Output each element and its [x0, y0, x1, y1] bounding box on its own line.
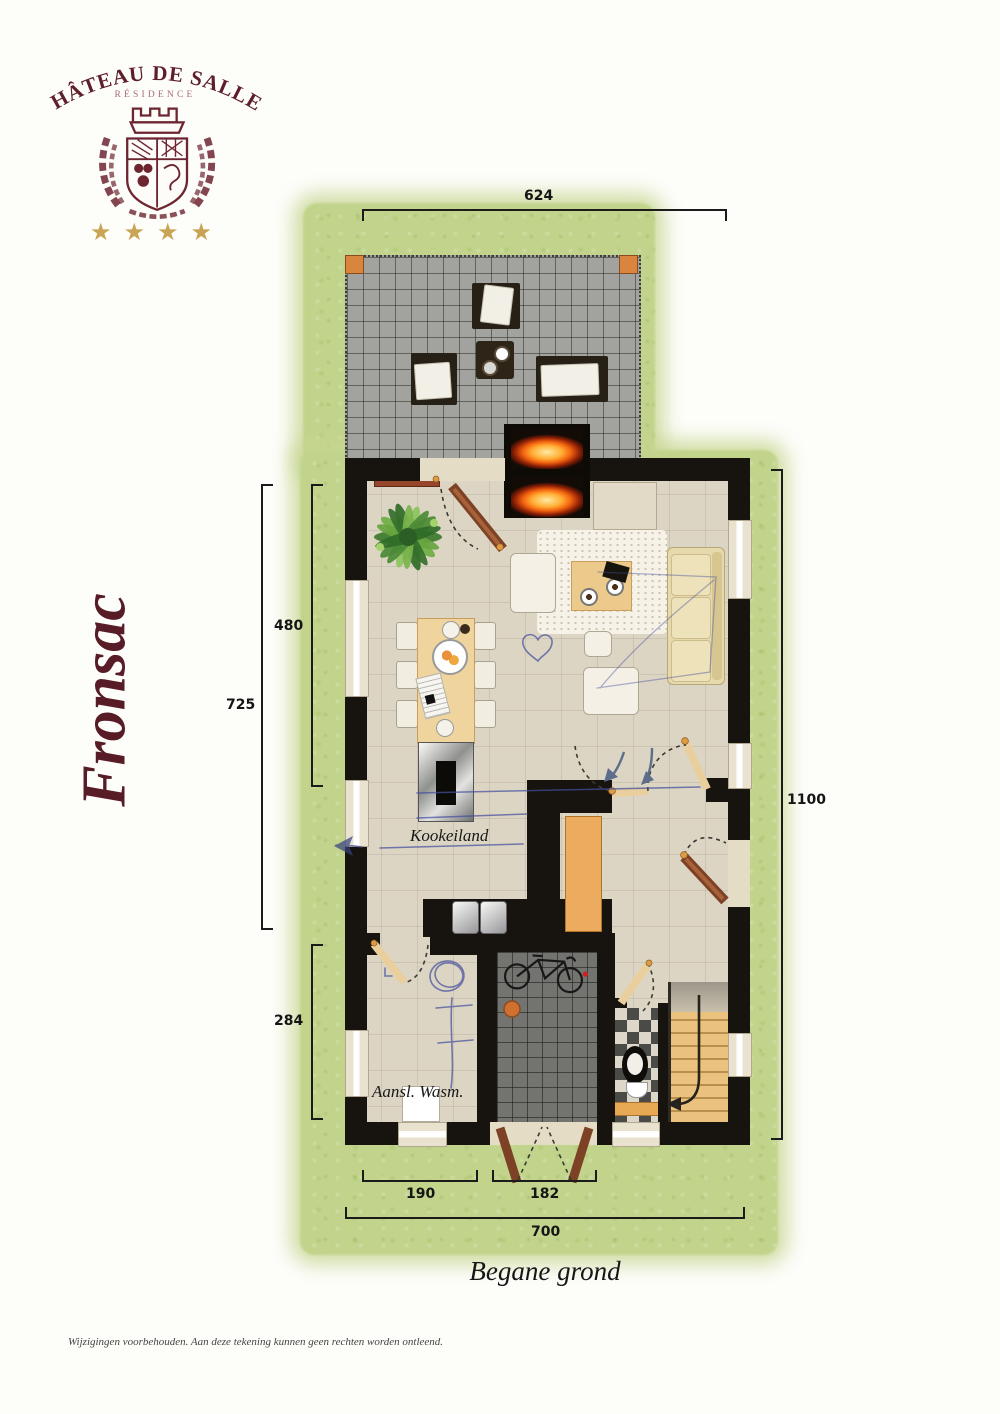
wall [658, 1122, 750, 1145]
wall [345, 845, 367, 1030]
wall [345, 695, 367, 780]
chair-cushion [480, 284, 514, 325]
cup [580, 588, 598, 606]
dim-label-190: 190 [406, 1186, 435, 1202]
entry-door-opening [490, 1122, 597, 1145]
kitchen-island-label: Kookeiland [410, 826, 488, 846]
window [728, 743, 752, 789]
window [345, 1030, 369, 1097]
sofa-backrest [712, 552, 722, 680]
wall [728, 907, 750, 1033]
fire-living [511, 477, 583, 517]
dim-line-284 [311, 944, 323, 1120]
terrace-post [619, 255, 638, 274]
staircase [668, 982, 731, 1122]
plate [436, 719, 454, 737]
dim-label-700: 700 [531, 1224, 560, 1240]
dim-label-1100: 1100 [787, 792, 826, 808]
magazine [602, 561, 629, 583]
dim-label-725: 725 [226, 697, 255, 713]
window [345, 580, 369, 697]
interior-wall [706, 778, 728, 802]
back-door-opening [728, 840, 750, 907]
dim-line-725 [261, 484, 273, 930]
plate [442, 621, 460, 639]
storage-floor [497, 952, 597, 1122]
terrace-table [476, 341, 514, 379]
window [728, 520, 752, 599]
window [345, 780, 369, 847]
floor-title: Begane grond [345, 1256, 745, 1287]
interior-wall [597, 933, 615, 1122]
dim-line-624 [362, 209, 727, 221]
fire-terrace [511, 429, 583, 469]
sofa-cushion [671, 554, 711, 596]
armchair [583, 667, 639, 715]
fireplace [504, 424, 590, 518]
brand-crest-icon [103, 109, 212, 217]
dim-label-480: 480 [274, 618, 303, 634]
interior-wall [658, 1003, 668, 1122]
dim-label-624: 624 [524, 188, 553, 204]
hall-cabinet [565, 816, 602, 932]
dim-line-700 [345, 1207, 745, 1219]
tv-stand [593, 482, 657, 530]
disclaimer: Wijzigingen voorbehouden. Aan deze teken… [68, 1336, 443, 1348]
dim-label-182: 182 [530, 1186, 559, 1202]
lounger-cushion [540, 363, 599, 397]
terrace-door-opening [420, 458, 505, 481]
interior-wall [430, 933, 477, 955]
dining-chair [396, 661, 418, 689]
wall [445, 1122, 490, 1145]
coffee-table [571, 561, 632, 611]
toilet [622, 1046, 648, 1084]
cup [482, 360, 498, 376]
washer-label: Aansl. Wasm. [372, 1082, 463, 1102]
chair-cushion [414, 362, 452, 400]
brand-stars: ★ ★ ★ ★ [90, 218, 215, 247]
wall [590, 458, 750, 481]
toilet-bowl [627, 1053, 643, 1075]
cup [494, 346, 510, 362]
fruit-plate [432, 639, 468, 675]
cup [460, 624, 470, 634]
toilet-shelf [614, 1102, 662, 1116]
wall [728, 597, 750, 743]
dining-chair [474, 700, 496, 728]
dim-line-182 [492, 1170, 597, 1182]
terrace-chair [472, 283, 520, 329]
dim-label-284: 284 [274, 1013, 303, 1029]
pouf [584, 631, 612, 657]
newspaper [415, 672, 450, 719]
newspaper-photo [425, 694, 436, 705]
window [728, 1033, 752, 1077]
wall [345, 458, 367, 580]
sink [452, 901, 479, 934]
wall [345, 1122, 398, 1145]
dim-line-480 [311, 484, 323, 787]
interior-wall [497, 933, 597, 952]
cooktop [436, 761, 456, 805]
wall [597, 1122, 612, 1145]
svg-text:CHÂTEAU DE SALLES: CHÂTEAU DE SALLES [45, 50, 265, 116]
armchair [510, 553, 556, 613]
dining-chair [396, 622, 418, 650]
brand-subtitle: RÉSIDENCE [114, 88, 195, 100]
brochure-page: CHÂTEAU DE SALLES RÉSIDENCE ★ ★ ★ ★ Fron… [0, 0, 1000, 1414]
dim-line-1100 [771, 469, 783, 1140]
dining-chair [396, 700, 418, 728]
interior-wall [615, 998, 627, 1008]
wall [728, 787, 750, 840]
interior-wall [367, 933, 380, 955]
kitchen-island [418, 742, 474, 822]
dining-table [417, 618, 475, 744]
terrace-chair [411, 353, 457, 405]
window [612, 1122, 660, 1147]
dim-line-190 [362, 1170, 478, 1182]
terrace-post [345, 255, 364, 274]
dining-chair [474, 661, 496, 689]
window [398, 1122, 447, 1147]
wall [728, 458, 750, 520]
sofa-cushion [671, 597, 711, 639]
sofa [667, 547, 725, 685]
sofa-cushion [671, 640, 711, 682]
terrace-lounger [536, 356, 608, 402]
sink [480, 901, 507, 934]
dining-chair [474, 622, 496, 650]
interior-wall [527, 780, 612, 813]
brand-name: CHÂTEAU DE SALLES [45, 50, 265, 116]
interior-wall [477, 933, 497, 1122]
